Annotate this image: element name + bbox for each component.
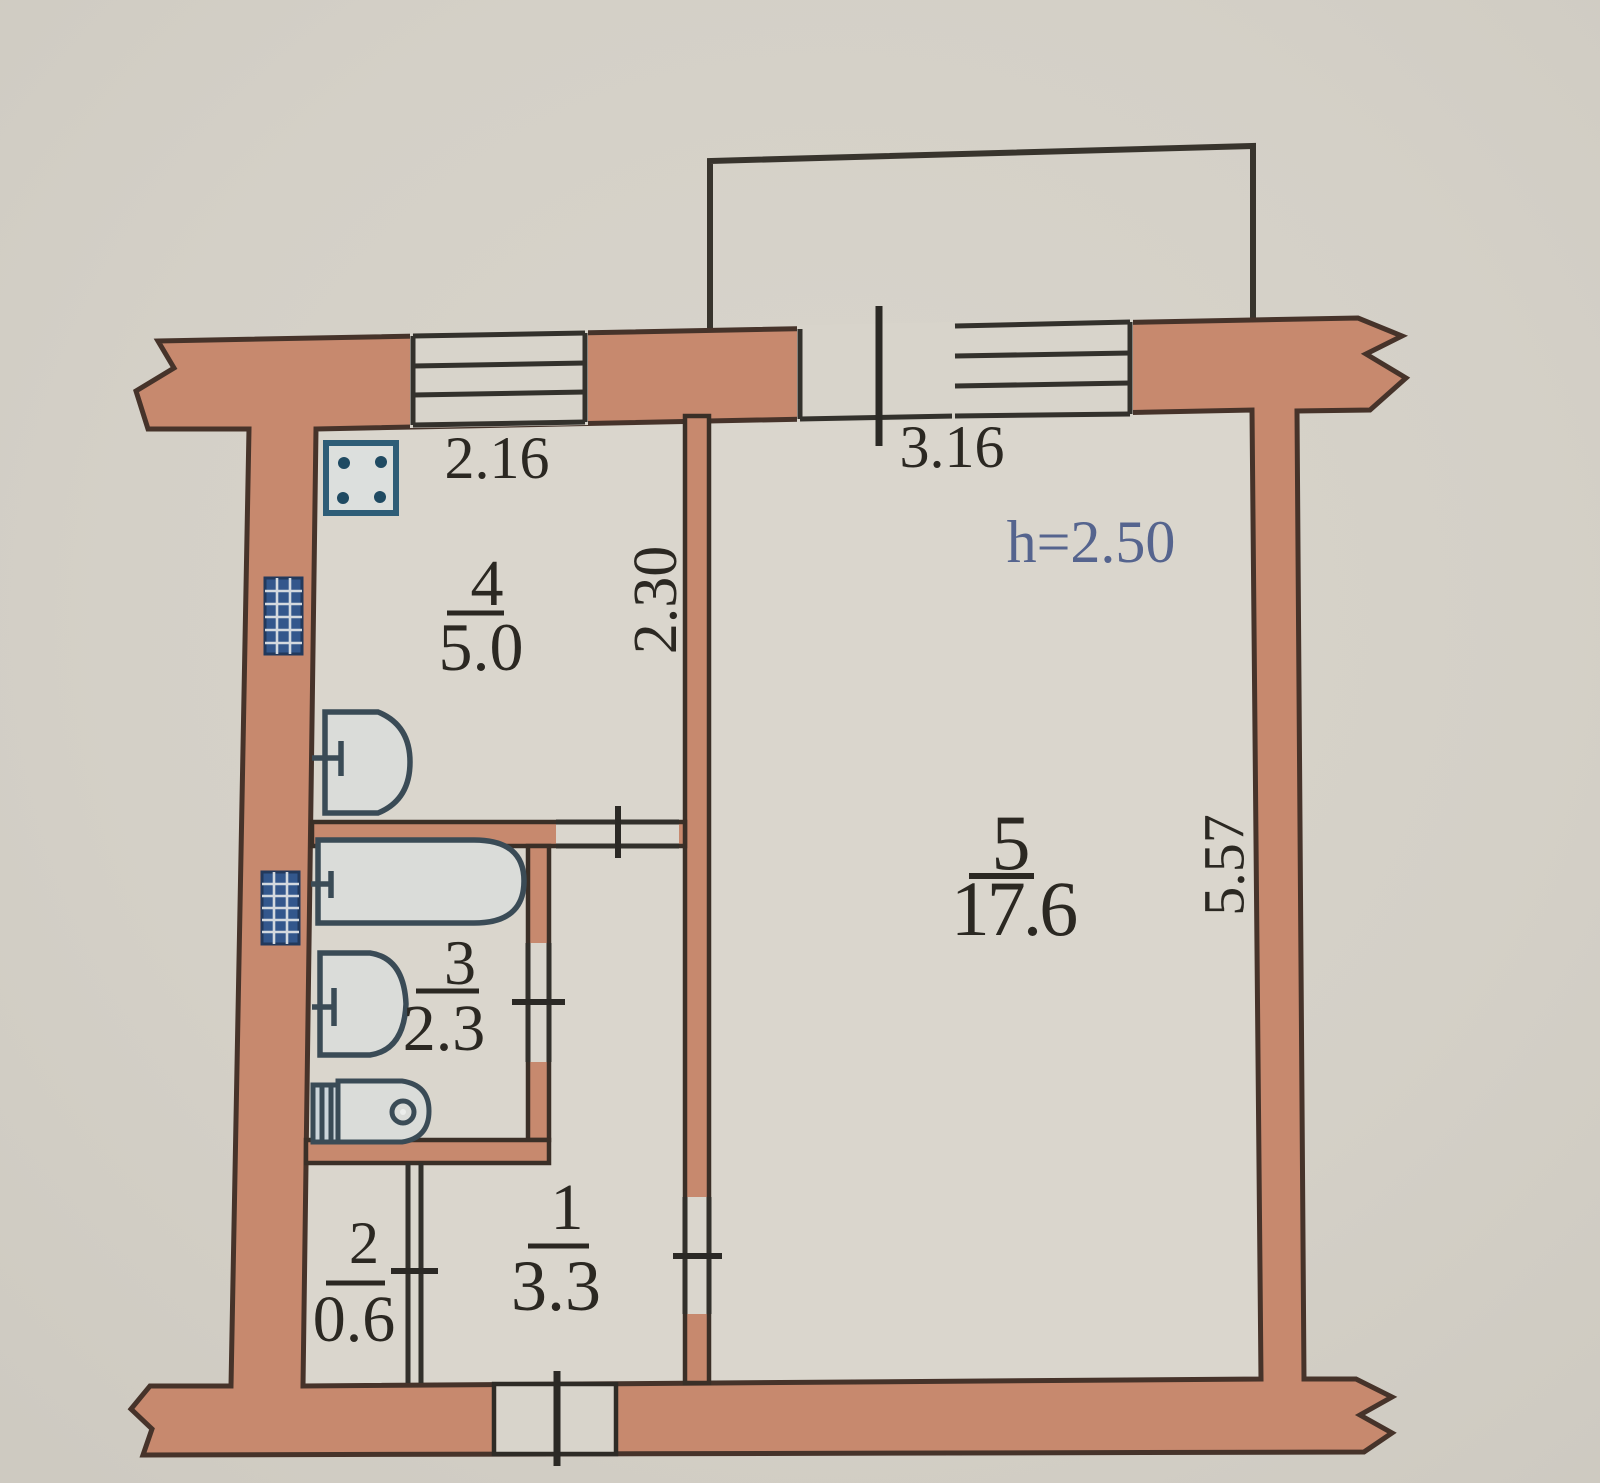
svg-text:2: 2 xyxy=(349,1210,379,1276)
svg-text:5.57: 5.57 xyxy=(1191,814,1256,916)
svg-text:1: 1 xyxy=(551,1171,584,1244)
svg-text:3.16: 3.16 xyxy=(900,414,1005,480)
svg-text:h=2.50: h=2.50 xyxy=(1007,509,1176,575)
svg-text:3.3: 3.3 xyxy=(511,1246,601,1326)
svg-text:2.16: 2.16 xyxy=(445,425,550,491)
svg-text:0.6: 0.6 xyxy=(313,1283,396,1356)
svg-text:17.6: 17.6 xyxy=(951,865,1077,952)
svg-text:3: 3 xyxy=(444,927,476,998)
svg-text:5.0: 5.0 xyxy=(439,609,524,685)
svg-text:2.30: 2.30 xyxy=(622,546,690,655)
svg-text:2.3: 2.3 xyxy=(403,992,486,1065)
